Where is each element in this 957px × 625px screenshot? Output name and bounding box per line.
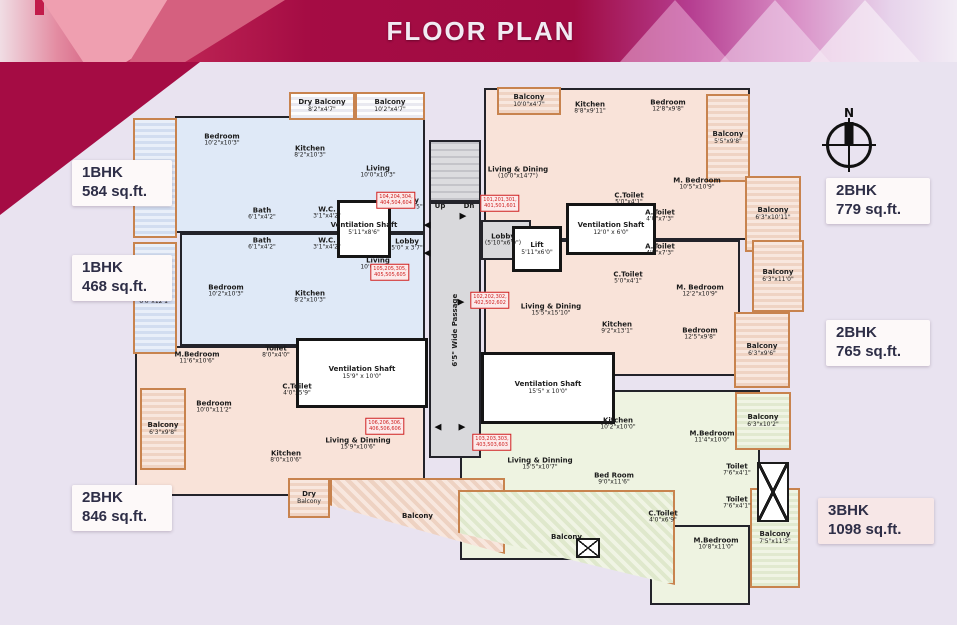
room-dims: 5'0"x4'1" xyxy=(613,279,642,286)
staircase xyxy=(429,140,481,202)
vent-shaft-2: Ventilation Shaft12'0" x 6'0" xyxy=(566,203,656,255)
room-label: Kitchen8'8"x9'11" xyxy=(574,101,605,116)
area-dims: Balcony xyxy=(297,499,321,506)
area-dims: 5'11"x6'0" xyxy=(521,250,552,257)
room-dims: 4'0"x7'3" xyxy=(645,251,675,258)
lift-label: Lift5'11"x6'0" xyxy=(521,241,552,256)
page-title: FLOOR PLAN xyxy=(387,16,576,47)
room-dims: 11'6"x10'6" xyxy=(174,359,219,366)
flat-numbers-box: 106,206,306,406,506,606 xyxy=(365,418,404,435)
room-dims: 10'2"x10'3" xyxy=(204,141,239,148)
room-dims: 15'5"x15'10" xyxy=(521,311,581,318)
unit-badge-1bhk-468: 1BHK468 sq.ft. xyxy=(72,255,172,301)
room-label: M.Bedroom11'6"x10'6" xyxy=(174,351,219,366)
badge-unit-area: 846 sq.ft. xyxy=(82,508,162,527)
room-label: Bed Room9'0"x11'6" xyxy=(594,472,634,487)
room-label: Lobby(5'10"x6'0") xyxy=(485,233,521,248)
room-label: Toilet7'6"x4'1" xyxy=(723,496,751,511)
dry-balcony-label: DryBalcony xyxy=(297,490,321,505)
room-dims: 15'9"x10'6" xyxy=(325,445,390,452)
entry-arrow-icon: ◀ xyxy=(424,250,431,259)
room-label: C.Toilet4'0"x5'9" xyxy=(282,383,311,398)
flat-numbers-box: 105,205,305,405,505,605 xyxy=(370,264,409,281)
area-dims: 6'3"x9'6" xyxy=(748,351,776,358)
entry-arrow-icon: ▶ xyxy=(460,213,467,222)
room-label: Living & Dining(10'0"x14'7") xyxy=(488,166,548,181)
area-dims: 6'3"x10'2" xyxy=(747,422,778,429)
balcony-label: Balcony5'5"x9'8" xyxy=(713,130,744,145)
room-label: M. Bedroom10'5"x10'9" xyxy=(673,177,721,192)
room-dims: 10'2"x10'3" xyxy=(208,292,243,299)
balcony: Balcony10'0"x4'7" xyxy=(497,87,561,115)
room-label: Bath6'1"x4'2" xyxy=(248,237,276,252)
room-dims: 8'0"x4'0" xyxy=(262,353,290,360)
room-label: Up xyxy=(435,202,446,210)
balcony-label: Balcony6'3"x9'6" xyxy=(747,342,778,357)
entry-arrow-icon: ◀ xyxy=(435,424,442,433)
room-dims: 4'0"x6'9" xyxy=(648,518,677,525)
room-dims: 3'1"x4'2" xyxy=(313,214,341,221)
duct-x-icon xyxy=(757,462,789,522)
badge-unit-type: 1BHK xyxy=(82,164,162,183)
room-label: C.Toilet4'0"x6'9" xyxy=(648,510,677,525)
balcony: Balcony6'3"x9'6" xyxy=(734,312,790,388)
room-label: Toilet7'6"x4'1" xyxy=(723,463,751,478)
room-label: Living10'0"x10'3" xyxy=(360,165,395,180)
entry-arrow-icon: ▶ xyxy=(458,299,465,308)
area-dims: 15'9" x 10'0" xyxy=(342,374,381,381)
unit-badge-3bhk-1098: 3BHK1098 sq.ft. xyxy=(818,498,934,544)
room-label: Kitchen8'2"x10'3" xyxy=(294,290,325,305)
balcony: Balcony5'5"x9'8" xyxy=(706,94,750,182)
flat-numbers-box: 103,203,303,403,503,603 xyxy=(472,434,511,451)
room-label: Bedroom12'5"x9'8" xyxy=(682,327,717,342)
room-label: Living & Dinning15'5"x10'7" xyxy=(507,457,572,472)
room-label: M.Bedroom10'8"x11'0" xyxy=(693,537,738,552)
balcony: Balcony6'3"x9'8" xyxy=(140,388,186,470)
room-dims: 4'0"x7'3" xyxy=(645,217,675,224)
room-label: W.C.3'1"x4'2" xyxy=(313,237,341,252)
room-dims: 11'4"x10'0" xyxy=(689,438,734,445)
room-label: Bedroom10'0"x11'2" xyxy=(196,400,231,415)
area-name: Balcony xyxy=(402,512,433,520)
dry-balcony: DryBalcony xyxy=(288,478,330,518)
badge-unit-type: 2BHK xyxy=(836,324,920,343)
room-dims: 9'0"x11'6" xyxy=(594,480,634,487)
unit-badge-2bhk-779: 2BHK779 sq.ft. xyxy=(826,178,930,224)
vent-shaft-4: Ventilation Shaft15'5" x 10'0" xyxy=(481,352,615,424)
flat-numbers-box: 104,204,304,404,504,604 xyxy=(376,192,415,209)
room-dims: 8'2"x10'3" xyxy=(294,153,325,160)
balcony: Balcony6'3"x10'2" xyxy=(735,392,791,450)
balcony-large-left-label: Balcony xyxy=(402,512,433,520)
dry-balcony: Dry Balcony8'2"x4'7" xyxy=(289,92,355,120)
compass-rose: N xyxy=(826,106,872,168)
room-label: W.C.3'1"x4'2" xyxy=(313,206,341,221)
entry-arrow-icon: ▶ xyxy=(459,424,466,433)
room-name: Dn xyxy=(464,202,475,210)
room-label: Dn xyxy=(464,202,475,210)
room-label: A.Toilet4'0"x7'3" xyxy=(645,209,675,224)
room-dims: 10'5"x10'9" xyxy=(673,185,721,192)
badge-unit-type: 2BHK xyxy=(82,489,162,508)
room-label: Living & Dinning15'9"x10'6" xyxy=(325,437,390,452)
area-dims: 5'5"x9'8" xyxy=(714,139,742,146)
vent-shaft-2-label: Ventilation Shaft12'0" x 6'0" xyxy=(578,221,645,236)
badge-unit-area: 1098 sq.ft. xyxy=(828,521,924,540)
room-dims: 12'5"x9'8" xyxy=(682,335,717,342)
balcony-large-3bhk: Balcony xyxy=(458,490,675,585)
room-dims: 7'6"x4'1" xyxy=(723,504,751,511)
vent-shaft-1-label: Ventilation Shaft5'11"x8'6" xyxy=(331,221,398,236)
badge-unit-type: 2BHK xyxy=(836,182,920,201)
room-label: Bedroom10'2"x10'3" xyxy=(208,284,243,299)
area-dims: 15'5" x 10'0" xyxy=(528,389,567,396)
room-dims: 12'8"x9'8" xyxy=(650,107,685,114)
room-label: Kitchen8'2"x10'3" xyxy=(294,145,325,160)
passage: 6'5" Wide Passage xyxy=(429,202,481,458)
compass-north-needle-icon xyxy=(845,122,854,146)
room-label: A.Toilet4'0"x7'3" xyxy=(645,243,675,258)
room-dims: 15'5"x10'7" xyxy=(507,465,572,472)
room-dims: 10'0"x10'3" xyxy=(360,173,395,180)
balcony: Balcony10'2"x4'7" xyxy=(355,92,425,120)
room-dims: 8'8"x9'11" xyxy=(574,109,605,116)
badge-unit-type: 1BHK xyxy=(82,259,162,278)
vent-shaft-3-label: Ventilation Shaft15'9" x 10'0" xyxy=(329,365,396,380)
room-dims: 10'2"x10'0" xyxy=(600,425,635,432)
room-dims: (10'0"x14'7") xyxy=(488,174,548,181)
room-dims: 10'0"x11'2" xyxy=(196,408,231,415)
area-dims: 5'11"x8'6" xyxy=(348,230,379,237)
flat-numbers-box: 102,202,302,402,502,602 xyxy=(470,292,509,309)
area-dims: 10'0"x4'7" xyxy=(513,102,544,109)
area-dims: 6'3"x9'8" xyxy=(149,430,177,437)
room-label: Bedroom12'8"x9'8" xyxy=(650,99,685,114)
room-dims: 5'0"x4'1" xyxy=(614,200,643,207)
badge-unit-type: 3BHK xyxy=(828,502,924,521)
vent-shaft-3: Ventilation Shaft15'9" x 10'0" xyxy=(296,338,428,408)
area-dims: 6'3"x10'11" xyxy=(755,215,790,222)
balcony-label: Balcony6'3"x11'0" xyxy=(762,268,793,283)
room-dims: (5'10"x6'0") xyxy=(485,241,521,248)
balcony: Balcony6'3"x11'0" xyxy=(752,240,804,312)
room-label: Toilet8'0"x4'0" xyxy=(262,345,290,360)
room-dims: 12'2"x10'9" xyxy=(676,292,724,299)
area-dims: 10'2"x4'7" xyxy=(374,107,405,114)
compass-circle-icon xyxy=(826,122,872,168)
room-label: C.Toilet5'0"x4'1" xyxy=(614,192,643,207)
floor-plan-page: { "title": "FLOOR PLAN", "compass": { "l… xyxy=(0,0,957,625)
area-dims: 8'2"x4'7" xyxy=(308,107,336,114)
room-dims: 9'2"x13'1" xyxy=(601,329,632,336)
duct-x-icon xyxy=(576,538,600,558)
room-label: Kitchen8'0"x10'6" xyxy=(270,450,301,465)
balcony-label: Balcony6'3"x10'11" xyxy=(755,206,790,221)
badge-unit-area: 468 sq.ft. xyxy=(82,278,162,297)
unit-badge-1bhk-584: 1BHK584 sq.ft. xyxy=(72,160,172,206)
area-dims: 7'5"x11'3" xyxy=(759,539,790,546)
area-dims: 12'0" x 6'0" xyxy=(593,230,628,237)
room-dims: 7'6"x4'1" xyxy=(723,471,751,478)
entry-arrow-icon: ◀ xyxy=(424,222,431,231)
room-dims: 8'0"x10'6" xyxy=(270,458,301,465)
balcony-label: Balcony10'2"x4'7" xyxy=(374,98,405,113)
room-label: Kitchen9'2"x13'1" xyxy=(601,321,632,336)
room-label: M. Bedroom12'2"x10'9" xyxy=(676,284,724,299)
unit-badge-2bhk-846: 2BHK846 sq.ft. xyxy=(72,485,172,531)
dry-balcony-label: Dry Balcony8'2"x4'7" xyxy=(298,98,345,113)
badge-unit-area: 765 sq.ft. xyxy=(836,343,920,362)
balcony-label: Balcony7'5"x11'3" xyxy=(759,530,790,545)
room-label: Bath6'1"x4'2" xyxy=(248,207,276,222)
room-label: C.Toilet5'0"x4'1" xyxy=(613,271,642,286)
room-label: Kitchen10'2"x10'0" xyxy=(600,417,635,432)
unit-badge-2bhk-765: 2BHK765 sq.ft. xyxy=(826,320,930,366)
room-dims: 6'1"x4'2" xyxy=(248,245,276,252)
room-dims: 10'8"x11'0" xyxy=(693,545,738,552)
room-label: Lobby5'0" x 3'7" xyxy=(391,238,422,253)
vent-shaft-4-label: Ventilation Shaft15'5" x 10'0" xyxy=(515,380,582,395)
room-dims: 8'2"x10'3" xyxy=(294,298,325,305)
flat-numbers-box: 101,201,301,401,501,601 xyxy=(480,195,519,212)
room-dims: 4'0"x5'9" xyxy=(282,391,311,398)
room-dims: 5'0" x 3'7" xyxy=(391,246,422,253)
area-dims: 6'3"x11'0" xyxy=(762,277,793,284)
banner-decoration-red-bar xyxy=(35,0,44,15)
room-label: M.Bedroom11'4"x10'0" xyxy=(689,430,734,445)
balcony-label: Balcony10'0"x4'7" xyxy=(513,93,544,108)
room-label: Bedroom10'2"x10'3" xyxy=(204,133,239,148)
balcony-label: Balcony6'3"x10'2" xyxy=(747,413,778,428)
badge-unit-area: 779 sq.ft. xyxy=(836,201,920,220)
room-label: Living & Dining15'5"x15'10" xyxy=(521,303,581,318)
badge-unit-area: 584 sq.ft. xyxy=(82,183,162,202)
room-dims: 6'1"x4'2" xyxy=(248,215,276,222)
balcony-label: Balcony6'3"x9'8" xyxy=(148,421,179,436)
vent-shaft-1: Ventilation Shaft5'11"x8'6" xyxy=(337,200,391,258)
room-dims: 3'1"x4'2" xyxy=(313,245,341,252)
room-name: Up xyxy=(435,202,446,210)
